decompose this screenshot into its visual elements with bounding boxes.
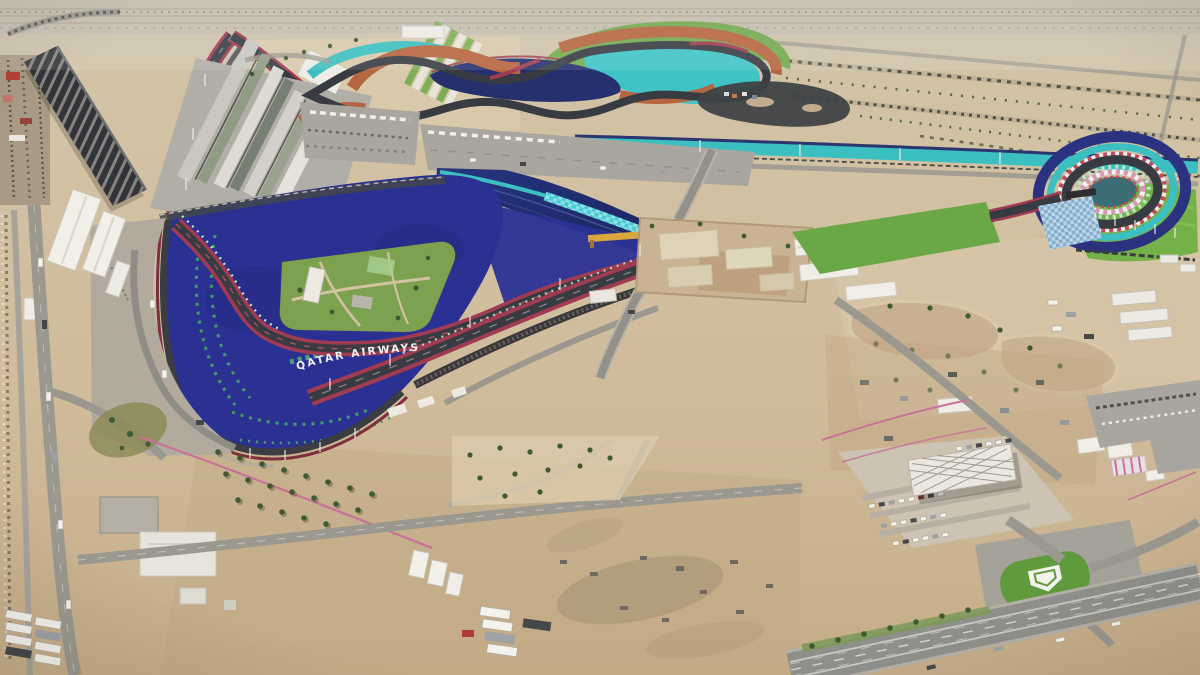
vignette xyxy=(0,0,1200,675)
circuit-aerial-scene: QATAR AIRWAYS xyxy=(0,0,1200,675)
aerial-photo: QATAR AIRWAYS xyxy=(0,0,1200,675)
